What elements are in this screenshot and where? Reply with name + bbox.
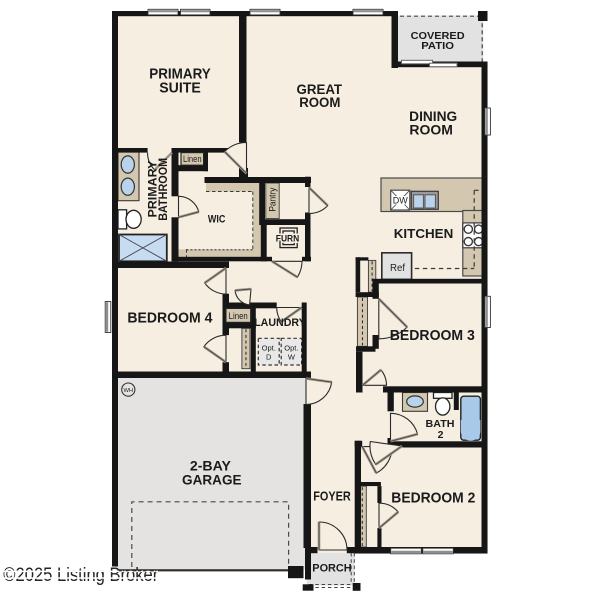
svg-text:BATHROOM: BATHROOM [156,158,170,221]
svg-text:BEDROOM 3: BEDROOM 3 [390,328,475,344]
svg-text:Linen: Linen [229,311,248,321]
svg-text:DW: DW [393,195,408,205]
svg-text:BEDROOM 4: BEDROOM 4 [127,311,213,327]
svg-text:PORCH: PORCH [312,562,351,574]
svg-text:W: W [288,353,296,362]
svg-text:KITCHEN: KITCHEN [394,226,454,241]
svg-text:FURN: FURN [276,234,300,244]
svg-text:ROOM: ROOM [409,123,453,138]
svg-text:BATH: BATH [426,418,455,430]
svg-text:WIC: WIC [208,214,226,226]
svg-text:FOYER: FOYER [313,489,351,503]
svg-text:Opt.: Opt. [284,344,298,353]
svg-text:©2025 Listing Broker: ©2025 Listing Broker [3,564,158,586]
svg-text:2-BAY: 2-BAY [190,459,231,474]
svg-text:D: D [266,353,272,362]
svg-text:Pantry: Pantry [268,187,279,211]
svg-text:ROOM: ROOM [299,95,340,110]
svg-text:PATIO: PATIO [421,41,454,52]
svg-text:Linen: Linen [183,154,202,165]
svg-text:BEDROOM 2: BEDROOM 2 [391,491,475,507]
svg-text:WH: WH [123,388,133,394]
svg-text:2: 2 [438,429,444,441]
svg-text:GARAGE: GARAGE [182,473,242,488]
svg-text:Opt.: Opt. [262,344,276,353]
svg-text:Ref: Ref [390,262,405,274]
svg-text:LAUNDRY: LAUNDRY [254,317,306,329]
svg-text:SUITE: SUITE [159,81,201,97]
